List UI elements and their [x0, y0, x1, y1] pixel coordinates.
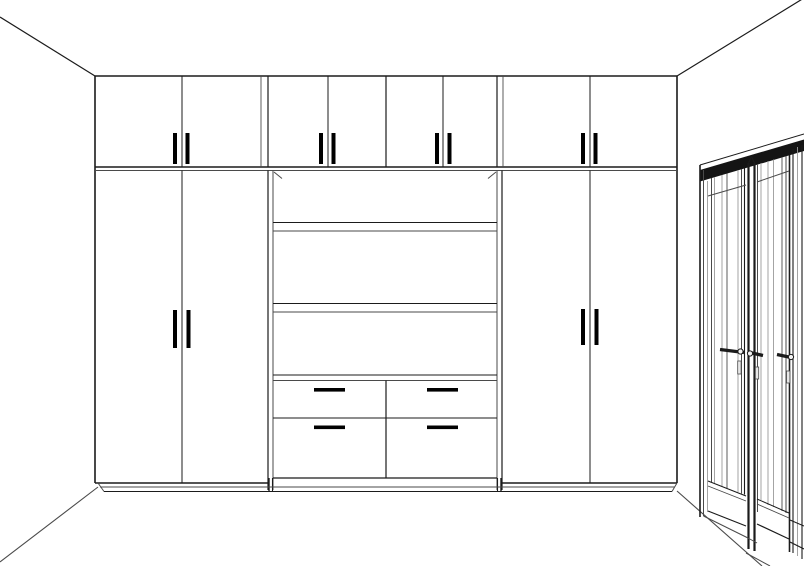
drawer-handle-bottom-left[interactable]	[314, 426, 345, 430]
entry-door-assembly[interactable]	[700, 134, 804, 566]
room-render	[0, 0, 804, 566]
upper-handle-2-right[interactable]	[332, 133, 336, 164]
left-cabinet-handle-right[interactable]	[187, 310, 191, 348]
render-canvas	[0, 0, 804, 566]
ceiling-edge-left	[0, 17, 95, 76]
entry-door-handles[interactable]	[720, 349, 794, 383]
key-plate-2	[755, 367, 758, 379]
handle-rosette-1	[738, 349, 743, 354]
drawer-unit[interactable]	[269, 381, 501, 492]
sill-line-3	[746, 553, 770, 566]
left-tall-cabinet[interactable]	[95, 171, 268, 491]
drawer-handle-top-left[interactable]	[314, 388, 345, 392]
upper-handle-3-left[interactable]	[435, 133, 439, 164]
upper-handle-1-left[interactable]	[173, 133, 177, 164]
entry-door-frame	[700, 134, 804, 517]
drawer-handle-top-right[interactable]	[427, 388, 458, 392]
upper-handle-1-right[interactable]	[186, 133, 190, 164]
plinth	[98, 483, 677, 492]
right-cabinet-handle-right[interactable]	[595, 309, 599, 345]
niche-depth-tick-right	[488, 172, 496, 179]
entry-door-left-leaf[interactable]	[708, 168, 746, 526]
right-leaf-bottom-edge	[757, 524, 789, 539]
left-cabinet-handle-left[interactable]	[173, 310, 177, 348]
handle-rosette-2	[747, 351, 752, 356]
right-leaf-top-rail	[757, 171, 789, 182]
wardrobe	[95, 76, 677, 492]
upper-handle-4-left[interactable]	[581, 133, 585, 164]
floor-edge-left	[0, 487, 98, 562]
key-plate-1	[738, 361, 741, 374]
drawer-handle-bottom-right[interactable]	[427, 426, 458, 430]
ceiling-edge-right	[677, 0, 804, 76]
center-shelf-niche[interactable]	[273, 171, 497, 491]
entry-door-far-leaf-partial[interactable]	[790, 145, 804, 559]
room-outline	[0, 0, 804, 566]
right-tall-cabinet[interactable]	[502, 171, 677, 491]
upper-handle-4-right[interactable]	[594, 133, 598, 164]
right-cabinet-handle-left[interactable]	[581, 309, 585, 345]
upper-handle-2-left[interactable]	[319, 133, 323, 164]
key-plate-3	[787, 371, 790, 383]
upper-cabinet-row[interactable]	[173, 76, 598, 167]
niche-depth-tick-left	[274, 172, 282, 179]
handle-rosette-3	[788, 354, 793, 359]
entry-door-right-leaf[interactable]	[757, 155, 790, 552]
upper-handle-3-right[interactable]	[448, 133, 452, 164]
